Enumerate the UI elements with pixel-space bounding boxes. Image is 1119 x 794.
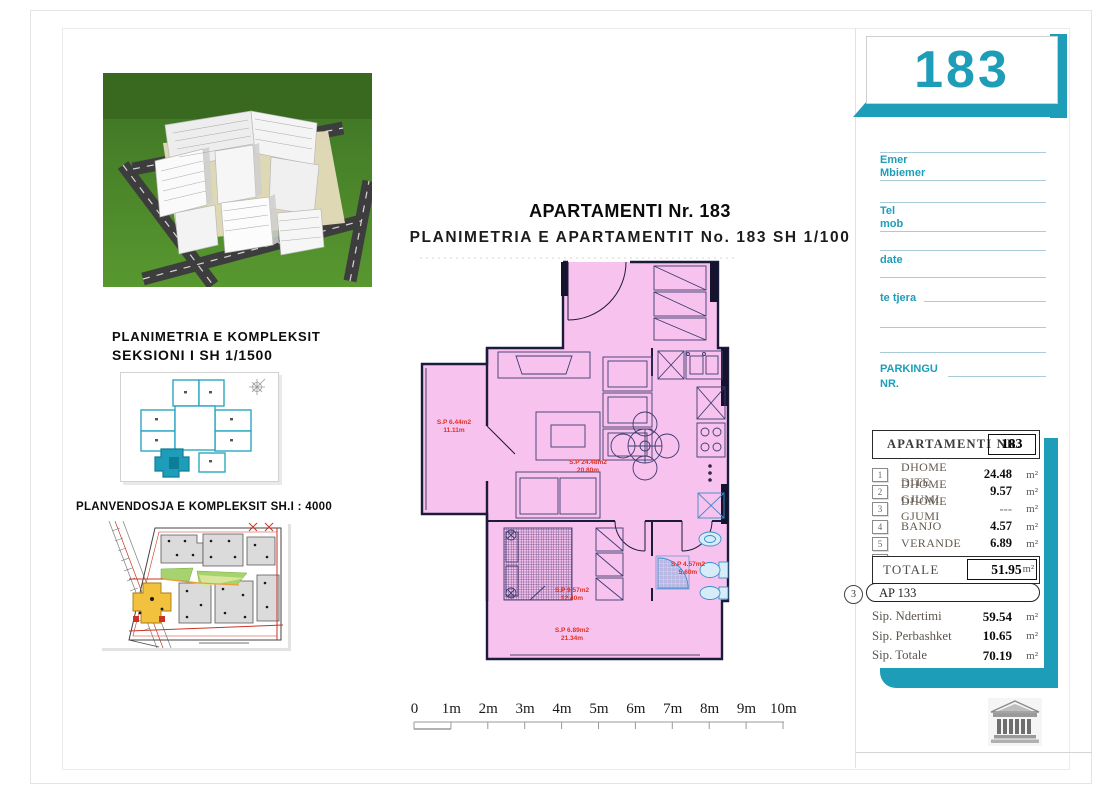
summary-value: 59.54 — [970, 609, 1012, 625]
table-row: 3 DHOME GJUMI --- m² — [872, 501, 1038, 518]
totale-value-box: 51.95 m² — [967, 559, 1037, 580]
summary-unit: m² — [1012, 611, 1038, 623]
form-line — [880, 327, 1046, 328]
row-label: BANJO — [901, 519, 974, 534]
form-label-te-tjera: te tjera — [880, 292, 916, 304]
form-label-tel: Tel — [880, 205, 895, 217]
row-value: 9.57 — [974, 484, 1012, 499]
row-label: VERANDE — [901, 536, 974, 551]
row-number: 4 — [872, 520, 888, 534]
summary-label: Sip. Ndertimi — [872, 609, 970, 624]
scale-label: 5m — [580, 701, 617, 718]
site-plan-drawing — [99, 521, 288, 648]
complex-caption-line1: PLANIMETRIA E KOMPLEKSIT — [112, 329, 321, 344]
form-label-parkingu: PARKINGU — [880, 363, 938, 375]
scale-bar-ticks — [396, 719, 802, 731]
form-line — [880, 250, 1046, 251]
scale-label: 8m — [691, 701, 728, 718]
scale-label: 9m — [728, 701, 765, 718]
form-line — [924, 301, 1046, 302]
form-line — [880, 152, 1046, 153]
page-title: APARTAMENTI Nr. 183 — [400, 201, 860, 222]
form-label-mbiemer: Mbiemer — [880, 167, 925, 179]
scale-label: 6m — [617, 701, 654, 718]
row-value: 24.48 — [974, 467, 1012, 482]
area-table-rows: 1 DHOME DITE 24.48 m² 2 DHOME GJUMI 9.57… — [872, 466, 1038, 570]
summary-row: Sip. Ndertimi 59.54 m² — [872, 607, 1038, 627]
summary-row: Sip. Perbashket 10.65 m² — [872, 627, 1038, 647]
row-number: 2 — [872, 485, 888, 499]
ap-badge: AP 133 — [866, 583, 1040, 602]
scale-label: 0 — [396, 701, 433, 718]
scale-label: 10m — [765, 701, 802, 718]
compass-icon — [249, 379, 265, 395]
scale-label: 3m — [507, 701, 544, 718]
form-label-nr: NR. — [880, 378, 899, 390]
bottom-right-rule — [856, 752, 1092, 753]
row-number: 1 — [872, 468, 888, 482]
summary-value: 70.19 — [970, 648, 1012, 664]
scale-label: 7m — [654, 701, 691, 718]
row-unit: m² — [1012, 469, 1038, 481]
row-unit: m² — [1012, 538, 1038, 550]
section-diagram-drawing — [121, 373, 276, 479]
complex-site-plan — [99, 521, 288, 648]
floor-plan-drawing: S.P 6.44m2 11.11m S.P 24.48m2 20.80m S.P… — [420, 256, 735, 666]
scale-label: 1m — [433, 701, 470, 718]
complex-caption-line2: SEKSIONI I SH 1/1500 — [112, 347, 321, 363]
form-label-mob: mob — [880, 218, 903, 230]
form-line — [880, 352, 1046, 353]
table-row: 5 VERANDE 6.89 m² — [872, 535, 1038, 552]
apartment-number-plate: 183 — [866, 36, 1058, 104]
form-line — [948, 376, 1046, 377]
row-unit: m² — [1012, 521, 1038, 533]
form-line — [880, 231, 1046, 232]
summary-unit: m² — [1012, 650, 1038, 662]
apartment-number: 183 — [914, 40, 1010, 100]
room-label-bath-area: S.P 4.57m2 — [671, 561, 706, 568]
drawing-sheet: PLANIMETRIA E KOMPLEKSIT SEKSIONI I SH 1… — [0, 0, 1119, 794]
room-label-living-area: S.P 24.48m2 — [569, 459, 607, 466]
totale-unit: m² — [1023, 564, 1034, 575]
room-label-bedroom-perimeter: 12.40m — [561, 595, 583, 602]
page-subtitle: PLANIMETRIA E APARTAMENTIT No. 183 SH 1/… — [400, 229, 860, 247]
room-label-ballkon-perimeter: 11.11m — [443, 427, 465, 434]
builder-logo-icon — [988, 698, 1042, 746]
row-number: 3 — [872, 502, 888, 516]
room-label-verande-area: S.P 6.89m2 — [555, 627, 590, 634]
room-label-ballkon-area: S.P 6.44m2 — [437, 419, 472, 426]
totale-value: 51.95 — [991, 562, 1021, 578]
complex-section-diagram — [120, 372, 279, 482]
row-number: 5 — [872, 537, 888, 551]
totale-row: TOTALE 51.95 m² — [872, 556, 1040, 584]
row-value: --- — [974, 502, 1012, 517]
scale-label: 4m — [544, 701, 581, 718]
room-label-living-perimeter: 20.80m — [577, 467, 599, 474]
row-unit: m² — [1012, 486, 1038, 498]
summary-rows: Sip. Ndertimi 59.54 m² Sip. Perbashket 1… — [872, 607, 1038, 666]
complex-3d-render — [103, 73, 372, 287]
form-label-emer: Emer — [880, 154, 908, 166]
row-value: 4.57 — [974, 519, 1012, 534]
room-label-bedroom-area: S.P 9.57m2 — [555, 587, 590, 594]
table-row: 4 BANJO 4.57 m² — [872, 518, 1038, 535]
area-table-header: APARTAMENTI NR. 183 — [872, 430, 1040, 459]
siteplan-caption: PLANVENDOSJA E KOMPLEKSIT SH.I : 4000 — [76, 501, 332, 513]
complex-3d-render-image — [103, 73, 372, 287]
room-label-verande-perimeter: 21.34m — [561, 635, 583, 642]
room-label-bath-perimeter: 5.60m — [679, 569, 698, 576]
form-label-date: date — [880, 254, 903, 266]
sidebar-separator — [855, 28, 856, 768]
area-table-header-number: 183 — [988, 434, 1036, 455]
summary-value: 10.65 — [970, 628, 1012, 644]
complex-section-caption: PLANIMETRIA E KOMPLEKSIT SEKSIONI I SH 1… — [112, 329, 321, 363]
row-value: 6.89 — [974, 536, 1012, 551]
summary-row: Sip. Totale 70.19 m² — [872, 646, 1038, 666]
floor-plan: S.P 6.44m2 11.11m S.P 24.48m2 20.80m S.P… — [420, 256, 735, 666]
scale-label: 2m — [470, 701, 507, 718]
totale-label: TOTALE — [883, 557, 939, 583]
summary-unit: m² — [1012, 630, 1038, 642]
row-unit: m² — [1012, 503, 1038, 515]
summary-label: Sip. Perbashket — [872, 629, 970, 644]
form-line — [880, 180, 1046, 181]
summary-label: Sip. Totale — [872, 648, 970, 663]
form-line — [880, 202, 1046, 203]
form-line — [880, 277, 1046, 278]
ap-index-circle: 3 — [844, 585, 863, 604]
scale-bar: 0 1m 2m 3m 4m 5m 6m 7m 8m 9m 10m — [396, 701, 802, 736]
